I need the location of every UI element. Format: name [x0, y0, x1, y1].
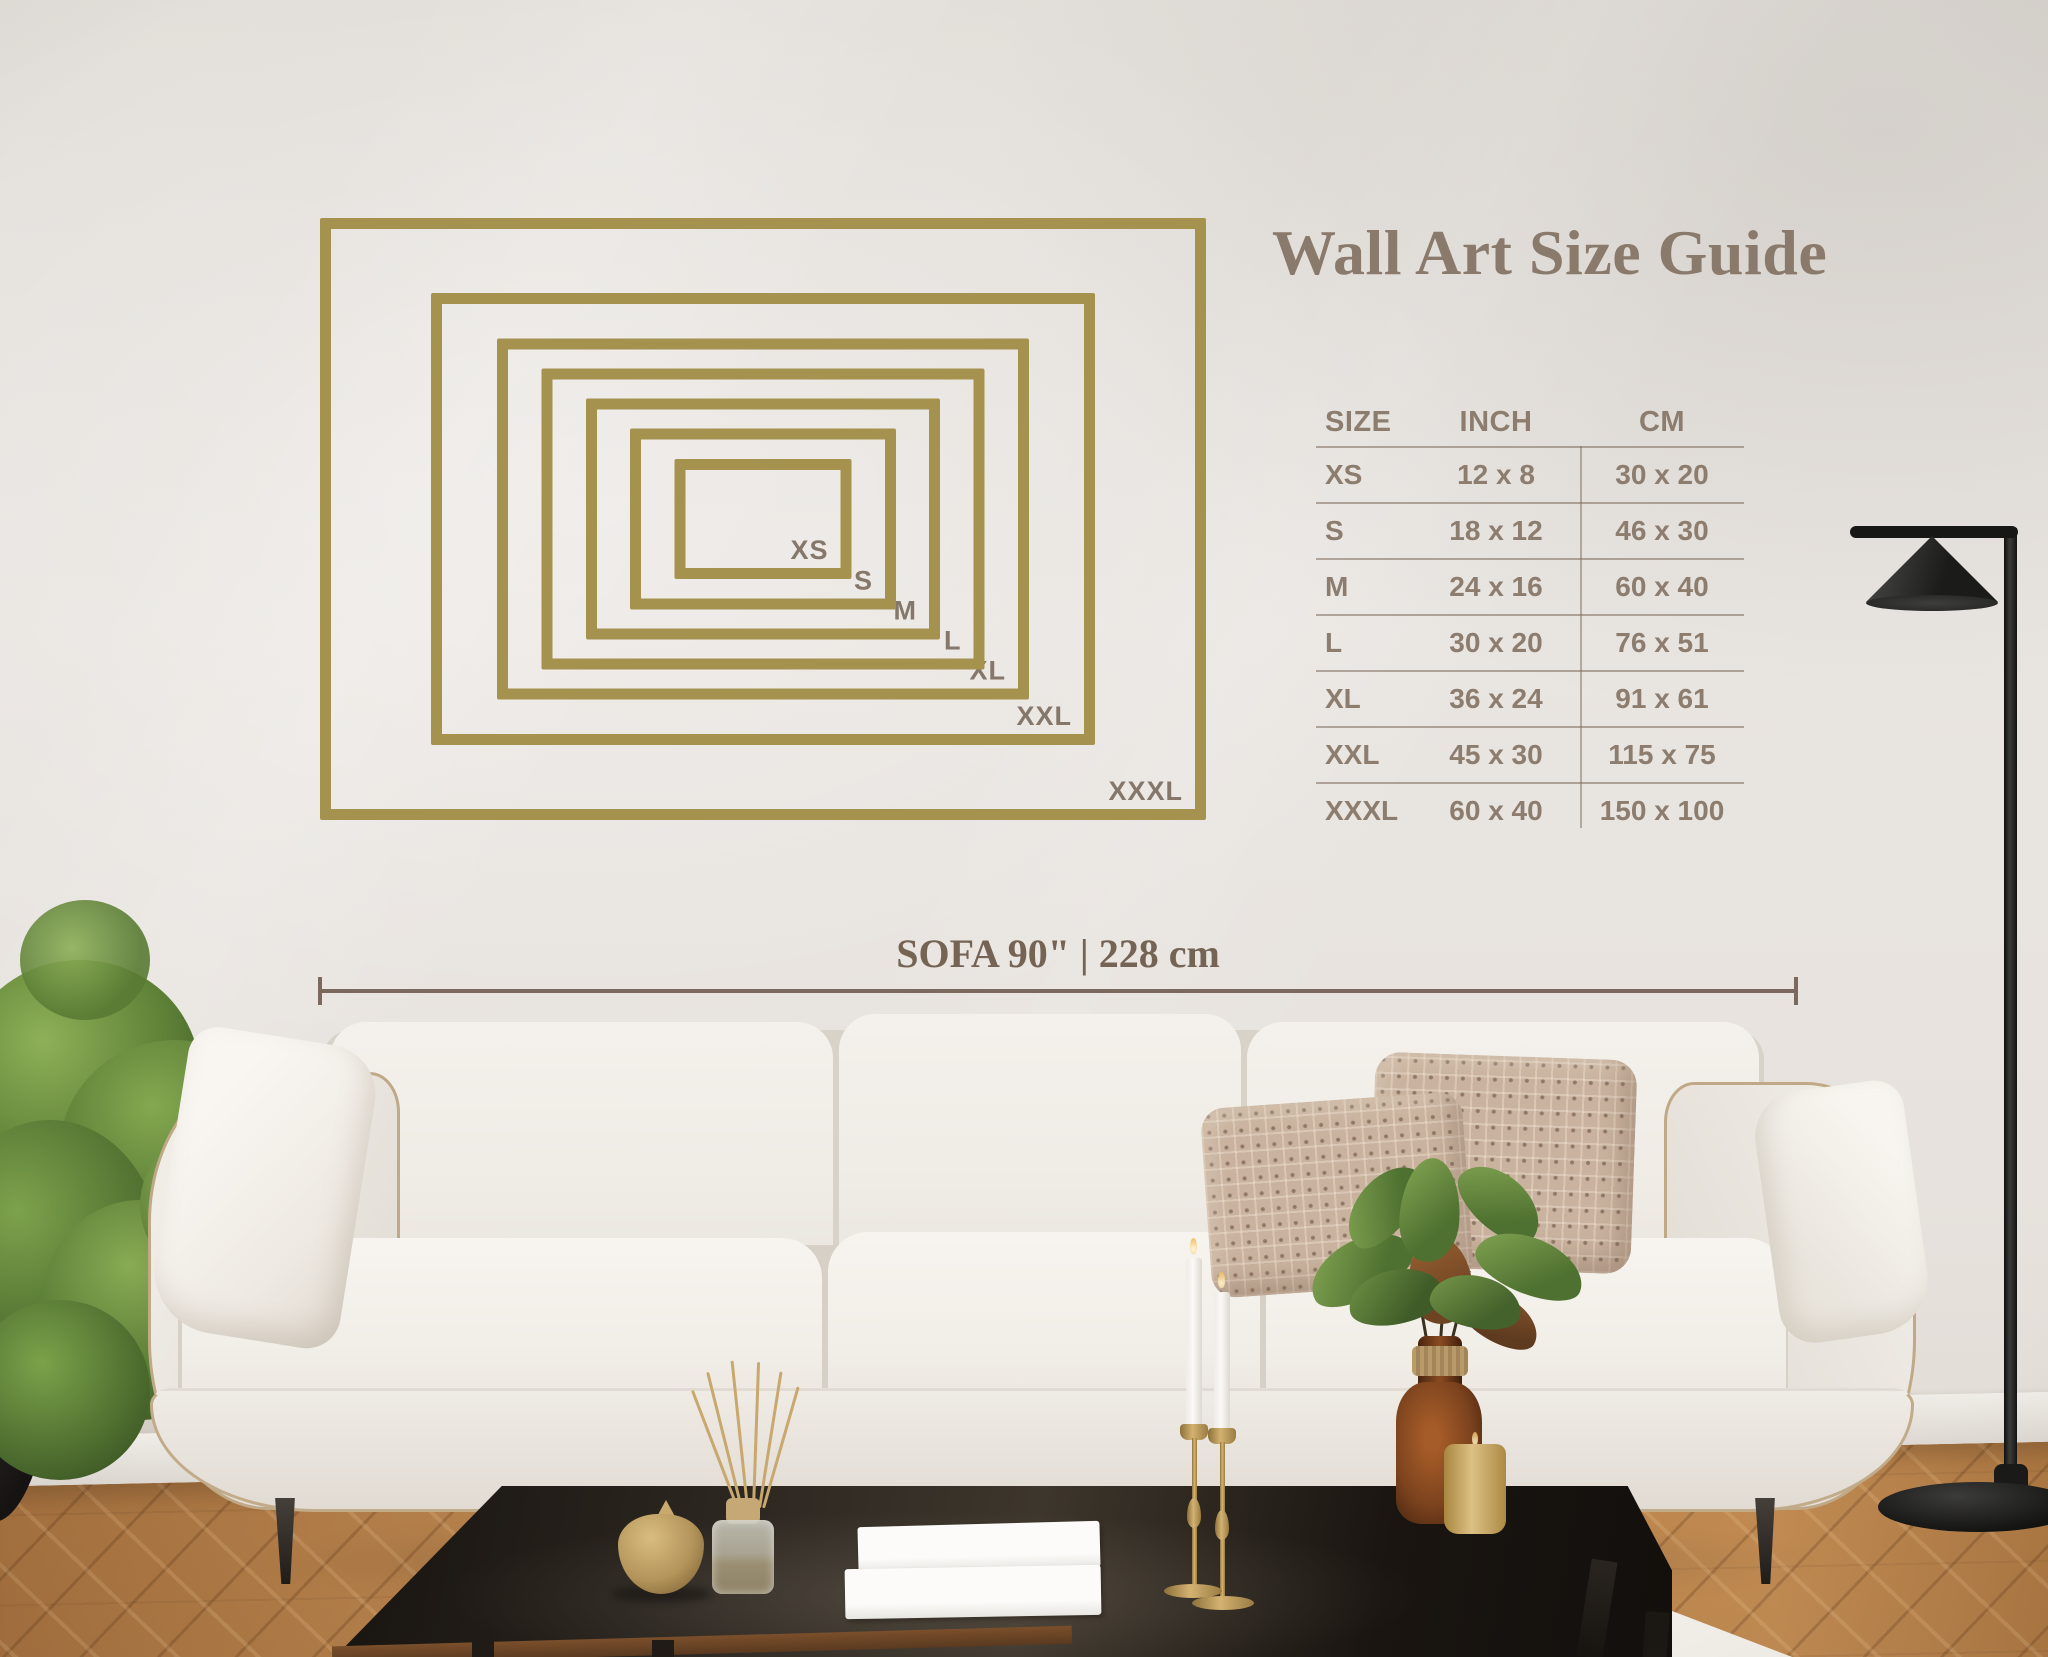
reed-diffuser-jar	[712, 1520, 774, 1594]
cm-cell: 150 x 100	[1580, 795, 1744, 827]
size-row-l: L 30 x 20 76 x 51	[1316, 614, 1744, 670]
inch-cell: 36 x 24	[1412, 683, 1580, 715]
candle-flame	[1190, 1238, 1197, 1254]
candle-flame	[1218, 1272, 1225, 1288]
size-cell: XL	[1316, 683, 1412, 715]
inch-cell: 45 x 30	[1412, 739, 1580, 771]
header-size: SIZE	[1316, 406, 1412, 439]
page-title: Wall Art Size Guide	[1272, 216, 1952, 290]
coffee-table-leg	[472, 1630, 494, 1657]
size-row-xxl: XXL 45 x 30 115 x 75	[1316, 726, 1744, 782]
size-table-header: SIZE INCH CM	[1316, 398, 1744, 446]
size-row-xl: XL 36 x 24 91 x 61	[1316, 670, 1744, 726]
size-row-s: S 18 x 12 46 x 30	[1316, 502, 1744, 558]
inch-cell: 60 x 40	[1412, 795, 1580, 827]
size-cell: S	[1316, 515, 1412, 547]
size-row-xxxl: XXXL 60 x 40 150 x 100	[1316, 782, 1744, 838]
cm-cell: 60 x 40	[1580, 571, 1744, 603]
frame-label-m: M	[894, 596, 918, 627]
frame-label-l: L	[944, 626, 962, 657]
size-cell: M	[1316, 571, 1412, 603]
coffee-table-leg	[1642, 1611, 1669, 1657]
frame-label-xxl: XXL	[1016, 701, 1072, 732]
frame-label-xxxl: XXXL	[1108, 776, 1183, 807]
candlestick-base	[1192, 1596, 1254, 1610]
coffee-table-leg	[652, 1640, 674, 1657]
cm-cell: 30 x 20	[1580, 459, 1744, 491]
gold-pillar-candle	[1444, 1444, 1506, 1534]
sofa-measurement-label: SOFA 90" | 228 cm	[318, 930, 1798, 977]
frame-label-xs: XS	[790, 535, 828, 566]
floor-lamp-shade-opening	[1866, 595, 1998, 611]
header-inch: INCH	[1412, 406, 1580, 439]
cm-cell: 91 x 61	[1580, 683, 1744, 715]
cm-cell: 46 x 30	[1580, 515, 1744, 547]
size-row-m: M 24 x 16 60 x 40	[1316, 558, 1744, 614]
inch-cell: 18 x 12	[1412, 515, 1580, 547]
size-cell: XXL	[1316, 739, 1412, 771]
white-book	[845, 1565, 1102, 1619]
size-cell: L	[1316, 627, 1412, 659]
frame-rect-xs: XS	[675, 459, 852, 579]
frame-label-s: S	[854, 566, 873, 597]
measure-end-cap-left	[318, 977, 322, 1005]
sofa-measurement-line	[318, 977, 1798, 1005]
table-column-divider	[1580, 446, 1582, 828]
plant-foliage	[20, 900, 150, 1020]
candlestick-ornament	[1187, 1498, 1201, 1528]
inch-cell: 24 x 16	[1412, 571, 1580, 603]
inch-cell: 30 x 20	[1412, 627, 1580, 659]
cm-cell: 76 x 51	[1580, 627, 1744, 659]
size-cell: XXXL	[1316, 795, 1412, 827]
candlestick-ornament	[1215, 1510, 1229, 1540]
floor-lamp-pole	[2004, 528, 2017, 1494]
cm-cell: 115 x 75	[1580, 739, 1744, 771]
taper-candle	[1186, 1258, 1202, 1428]
floor-lamp-arm	[1850, 526, 2018, 538]
measure-bar	[318, 989, 1798, 993]
taper-candle	[1214, 1292, 1230, 1432]
frame-size-diagram: XXXL XXL XL L M S XS	[320, 218, 1206, 820]
size-cell: XS	[1316, 459, 1412, 491]
size-table: SIZE INCH CM XS 12 x 8 30 x 20 S 18 x 12…	[1316, 398, 1744, 828]
wall-art-size-guide-mockup: XXXL XXL XL L M S XS Wall Art Size Guide…	[0, 0, 2048, 1657]
amber-vase-jute-band	[1412, 1346, 1468, 1376]
inch-cell: 12 x 8	[1412, 459, 1580, 491]
measure-end-cap-right	[1794, 977, 1798, 1005]
header-cm: CM	[1580, 406, 1744, 439]
size-row-xs: XS 12 x 8 30 x 20	[1316, 446, 1744, 502]
